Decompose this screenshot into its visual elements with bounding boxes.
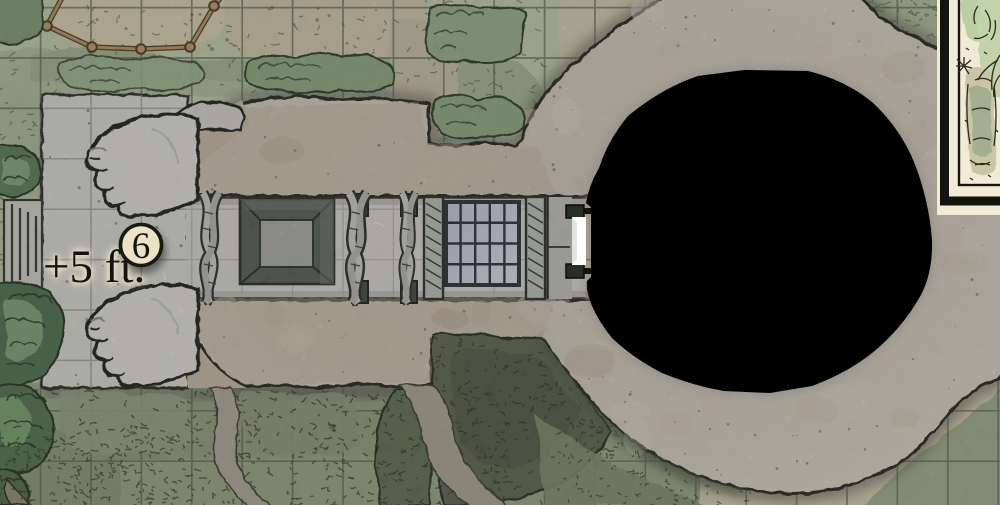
svg-text:6: 6 [132,226,151,267]
